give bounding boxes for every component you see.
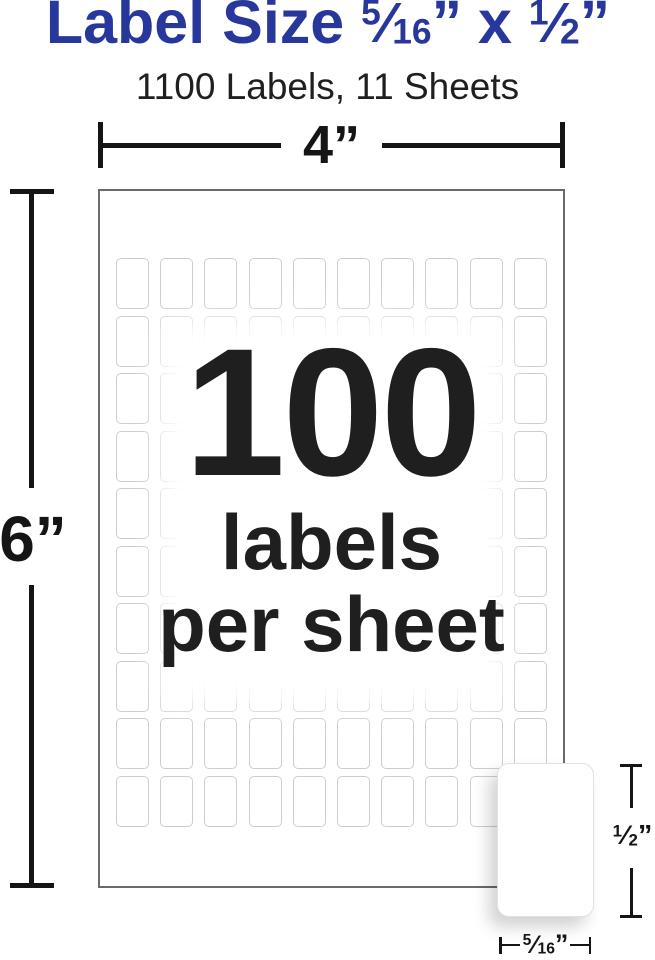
dimension-line [630, 868, 633, 915]
inch-mark: ” [555, 929, 568, 959]
label-cell [425, 776, 458, 827]
label-cell [116, 661, 149, 712]
label-cell [514, 661, 547, 712]
title-fraction-one-half: 1⁄2 [529, 0, 580, 56]
label-cell [116, 718, 149, 769]
label-cell [160, 258, 193, 309]
label-cell [293, 718, 326, 769]
label-cell [116, 258, 149, 309]
subtitle-count: 1100 Labels, 11 Sheets [0, 68, 655, 105]
sheet-width-value: 4” [303, 118, 360, 172]
label-sheet: 100 labels per sheet [98, 189, 565, 888]
inch-mark: ” [580, 0, 610, 56]
label-cell [204, 718, 237, 769]
inch-mark: ” [432, 0, 462, 56]
fraction-slash: ⁄ [550, 0, 559, 54]
label-cell [160, 718, 193, 769]
inch-mark: ” [638, 820, 652, 852]
label-cell [470, 718, 503, 769]
label-cell [249, 718, 282, 769]
label-cell [425, 258, 458, 309]
label-cell [337, 258, 370, 309]
sheet-height-dimension: 6” [10, 189, 54, 888]
dimension-line [570, 944, 588, 947]
label-cell [425, 718, 458, 769]
fraction-slash: ⁄ [382, 0, 391, 54]
labels-per-sheet-count: 100 [100, 321, 563, 503]
magnified-label [497, 763, 594, 917]
label-cell [337, 718, 370, 769]
label-cell [514, 718, 547, 769]
dimension-end-cap [589, 937, 592, 954]
dimension-line [502, 944, 520, 947]
title-prefix: Label Size [46, 0, 361, 56]
label-cell [204, 258, 237, 309]
label-cell [293, 776, 326, 827]
caption-line-1: labels [100, 503, 563, 581]
label-height-dimension: 1⁄2” [620, 764, 645, 918]
sheet-width-dimension: 4” [98, 122, 565, 168]
sheet-height-value: 6” [0, 507, 68, 571]
label-cell [381, 258, 414, 309]
dimension-end-cap [560, 122, 565, 168]
dimension-line [630, 766, 633, 808]
title-times: x [461, 0, 529, 56]
label-cell [470, 258, 503, 309]
label-cell [381, 776, 414, 827]
label-cell [160, 776, 193, 827]
label-cell [381, 718, 414, 769]
dimension-line [382, 143, 560, 148]
label-size-infographic: Label Size 5⁄16” x 1⁄2” 1100 Labels, 11 … [0, 0, 655, 960]
page-title: Label Size 5⁄16” x 1⁄2” [0, 0, 655, 53]
label-cell [293, 258, 326, 309]
label-cell [204, 776, 237, 827]
title-fraction-five-sixteenths: 5⁄16 [361, 0, 431, 56]
label-width-dimension: 5⁄16” [499, 933, 591, 957]
label-cell [337, 776, 370, 827]
label-cell [249, 776, 282, 827]
fraction-slash: ⁄ [532, 932, 536, 959]
label-cell [116, 776, 149, 827]
dimension-end-cap [10, 883, 54, 888]
label-cell [514, 258, 547, 309]
dimension-line [103, 143, 281, 148]
fraction-slash: ⁄ [623, 820, 627, 850]
dimension-line [29, 194, 34, 488]
label-cell [249, 258, 282, 309]
label-height-value: 1⁄2” [604, 822, 655, 851]
dimension-end-cap [620, 915, 642, 918]
label-width-value: 5⁄16” [523, 931, 568, 958]
dimension-line [29, 585, 34, 883]
caption-line-2: per sheet [100, 585, 563, 663]
sheet-caption: 100 labels per sheet [100, 321, 563, 663]
